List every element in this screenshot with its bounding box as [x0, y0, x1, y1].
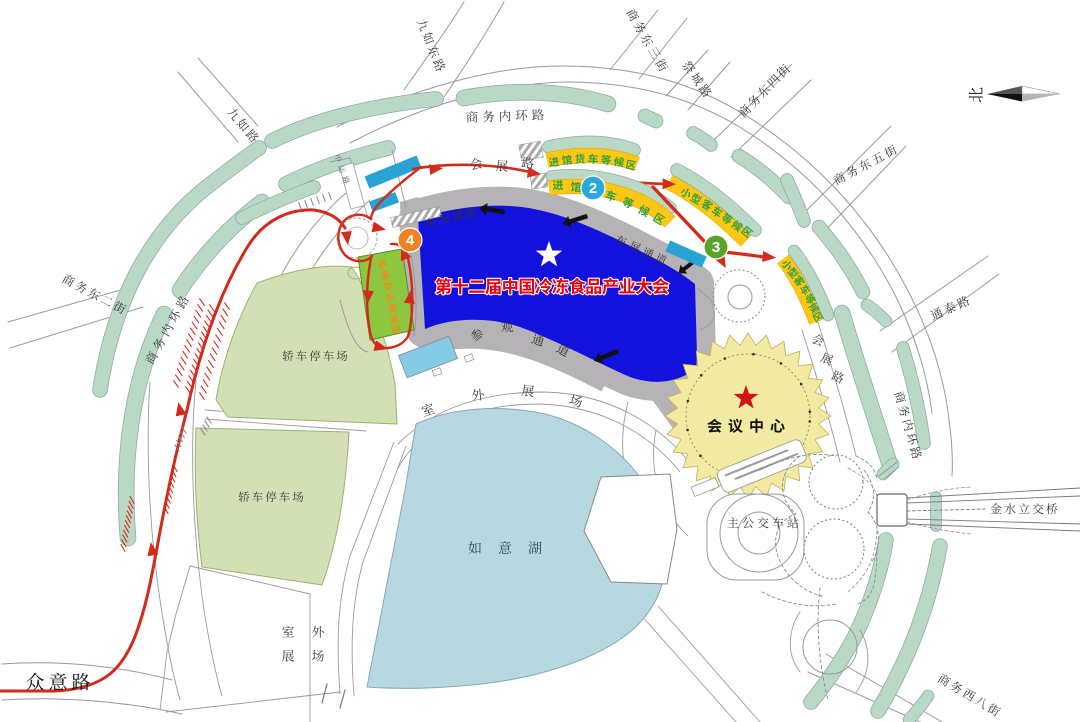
- svg-text:4: 4: [406, 232, 415, 249]
- svg-text:2: 2: [589, 180, 597, 197]
- svg-text:3: 3: [712, 239, 720, 256]
